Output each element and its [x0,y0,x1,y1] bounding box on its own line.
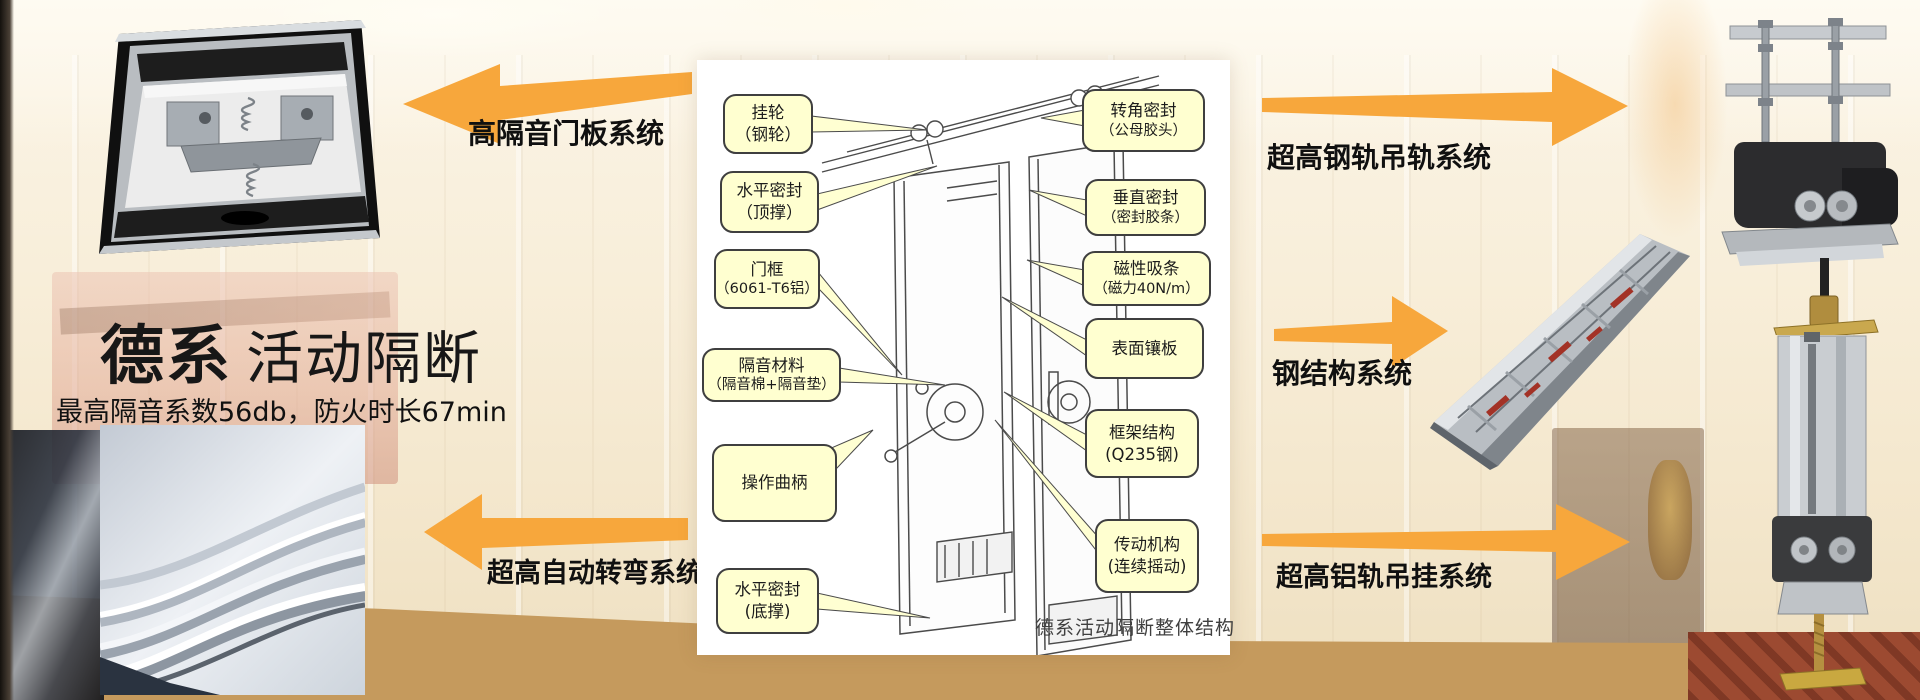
warm-light-glow [1600,0,1750,260]
callout-operating-crank: 操作曲柄 [712,444,837,522]
title-brand: 德系 [100,305,232,397]
callout-line: 转角密封 [1111,100,1177,122]
label-steel-structure-system: 钢结构系统 [1272,352,1412,392]
callout-line: 隔音材料 [739,355,805,377]
red-carpet-corner [1688,632,1920,700]
callout-line: 挂轮 [752,102,785,124]
structure-diagram-panel: 挂轮 （钢轮） 水平密封 （顶撑） 门框 （6061-T6铝） 隔音材料 （隔音… [697,60,1230,655]
callout-line: 水平密封 [737,180,803,202]
callout-line: (底撑) [745,601,791,623]
label-auto-turn-system: 超高自动转弯系统 [487,551,703,590]
callout-horizontal-seal-bottom: 水平密封 (底撑) [716,568,819,634]
callout-frame-structure: 框架结构 (Q235钢) [1085,409,1199,478]
title-product: 活动隔断 [246,313,482,395]
diagram-caption: 德系活动隔断整体结构 [1035,613,1231,640]
callout-line: 传动机构 [1114,534,1180,556]
label-steel-rail-system: 超高钢轨吊轨系统 [1267,136,1491,176]
slide-canvas: 高隔音门板系统 超高自动转弯系统 超高钢轨吊轨系统 钢结构系统 超高铝轨吊挂系统… [0,0,1920,700]
gold-artwork-background [1648,460,1692,580]
callout-line: (连续摇动) [1108,556,1187,578]
callout-line: （密封胶条） [1102,209,1189,228]
callout-line: 门框 [751,259,784,281]
title-subtitle: 最高隔音系数56db，防火时长67min [56,390,507,429]
label-door-panel-system: 高隔音门板系统 [468,112,664,152]
callout-sound-insulation: 隔音材料 （隔音棉+隔音垫） [702,348,841,402]
page-title: 德系 活动隔断 [100,305,482,397]
callout-line: （6061-T6铝） [715,280,819,299]
label-alu-rail-system: 超高铝轨吊挂系统 [1276,555,1492,594]
callout-line: （磁力40N/m） [1093,280,1199,299]
dark-partition-corner [0,430,104,700]
callout-door-frame: 门框 （6061-T6铝） [714,249,820,309]
callout-horizontal-seal-top: 水平密封 （顶撑） [720,171,819,233]
callout-line: 磁性吸条 [1114,258,1180,280]
callout-line: (Q235钢) [1105,444,1179,466]
callout-transmission: 传动机构 (连续摇动) [1095,519,1199,593]
callout-magnetic-strip: 磁性吸条 （磁力40N/m） [1082,251,1211,306]
callout-vertical-seal: 垂直密封 （密封胶条） [1085,179,1206,236]
callout-line: （隔音棉+隔音垫） [707,376,835,395]
callout-hanging-wheel: 挂轮 （钢轮） [723,94,813,154]
callout-corner-seal: 转角密封 （公母胶头） [1082,89,1205,152]
callout-line: （公母胶头） [1100,122,1187,141]
callout-line: （钢轮） [735,124,801,146]
callout-line: 表面镶板 [1112,338,1178,360]
callout-surface-panel: 表面镶板 [1085,318,1204,379]
left-edge-shadow [0,0,14,700]
callout-line: 操作曲柄 [742,472,808,494]
callout-line: 垂直密封 [1113,187,1179,209]
callout-line: （顶撑） [737,202,803,224]
callout-line: 框架结构 [1109,422,1175,444]
callout-line: 水平密封 [735,579,801,601]
